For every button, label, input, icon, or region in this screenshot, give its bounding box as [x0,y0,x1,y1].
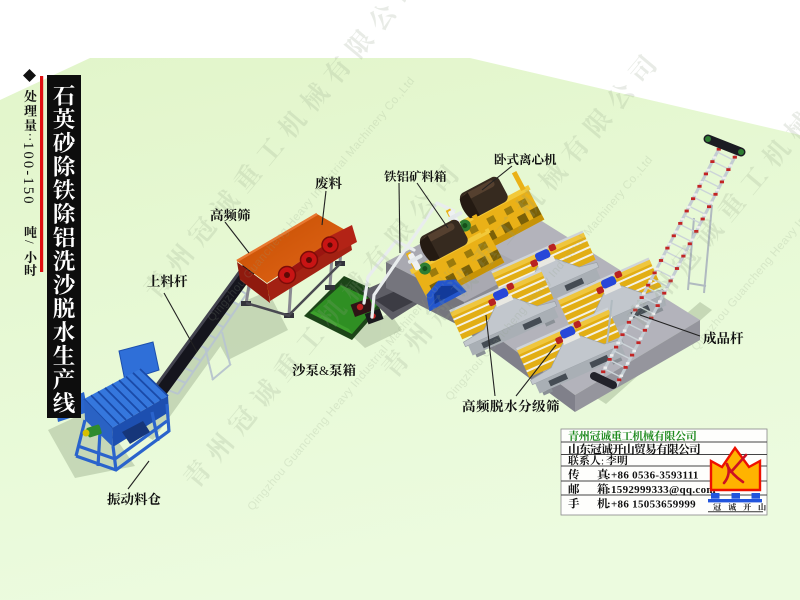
svg-text:&: & [319,363,329,378]
svg-text::: : [601,455,604,467]
svg-text:100-150: 100-150 [20,142,36,206]
svg-text:/: / [22,240,37,244]
svg-text::: : [28,128,32,143]
svg-text::1592999333@qq.com: :1592999333@qq.com [607,484,716,496]
svg-text::+86 0536-3593111: :+86 0536-3593111 [607,470,699,482]
svg-text::+86 15053659999: :+86 15053659999 [607,499,696,511]
